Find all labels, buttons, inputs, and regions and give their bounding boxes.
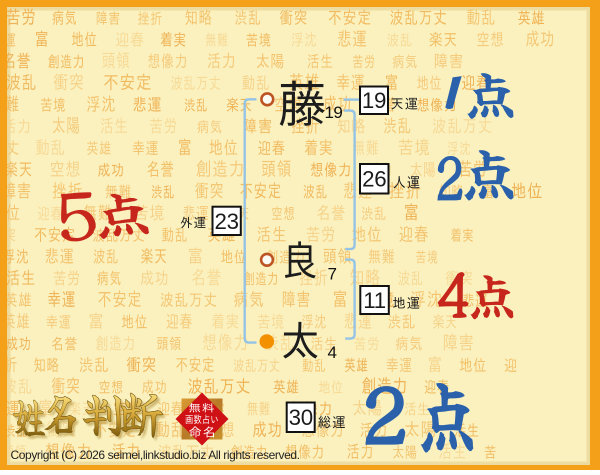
svg-text:26: 26 bbox=[362, 167, 386, 192]
svg-text:Copyright (C) 2026 seimei,link: Copyright (C) 2026 seimei,linkstudio.biz… bbox=[11, 448, 300, 462]
svg-text:11: 11 bbox=[363, 288, 386, 313]
svg-text:30: 30 bbox=[289, 405, 313, 430]
svg-text:19: 19 bbox=[362, 88, 386, 113]
svg-text:7: 7 bbox=[328, 265, 337, 284]
svg-text:4: 4 bbox=[328, 343, 337, 362]
svg-text:23: 23 bbox=[215, 209, 239, 234]
svg-text:19: 19 bbox=[325, 103, 343, 122]
